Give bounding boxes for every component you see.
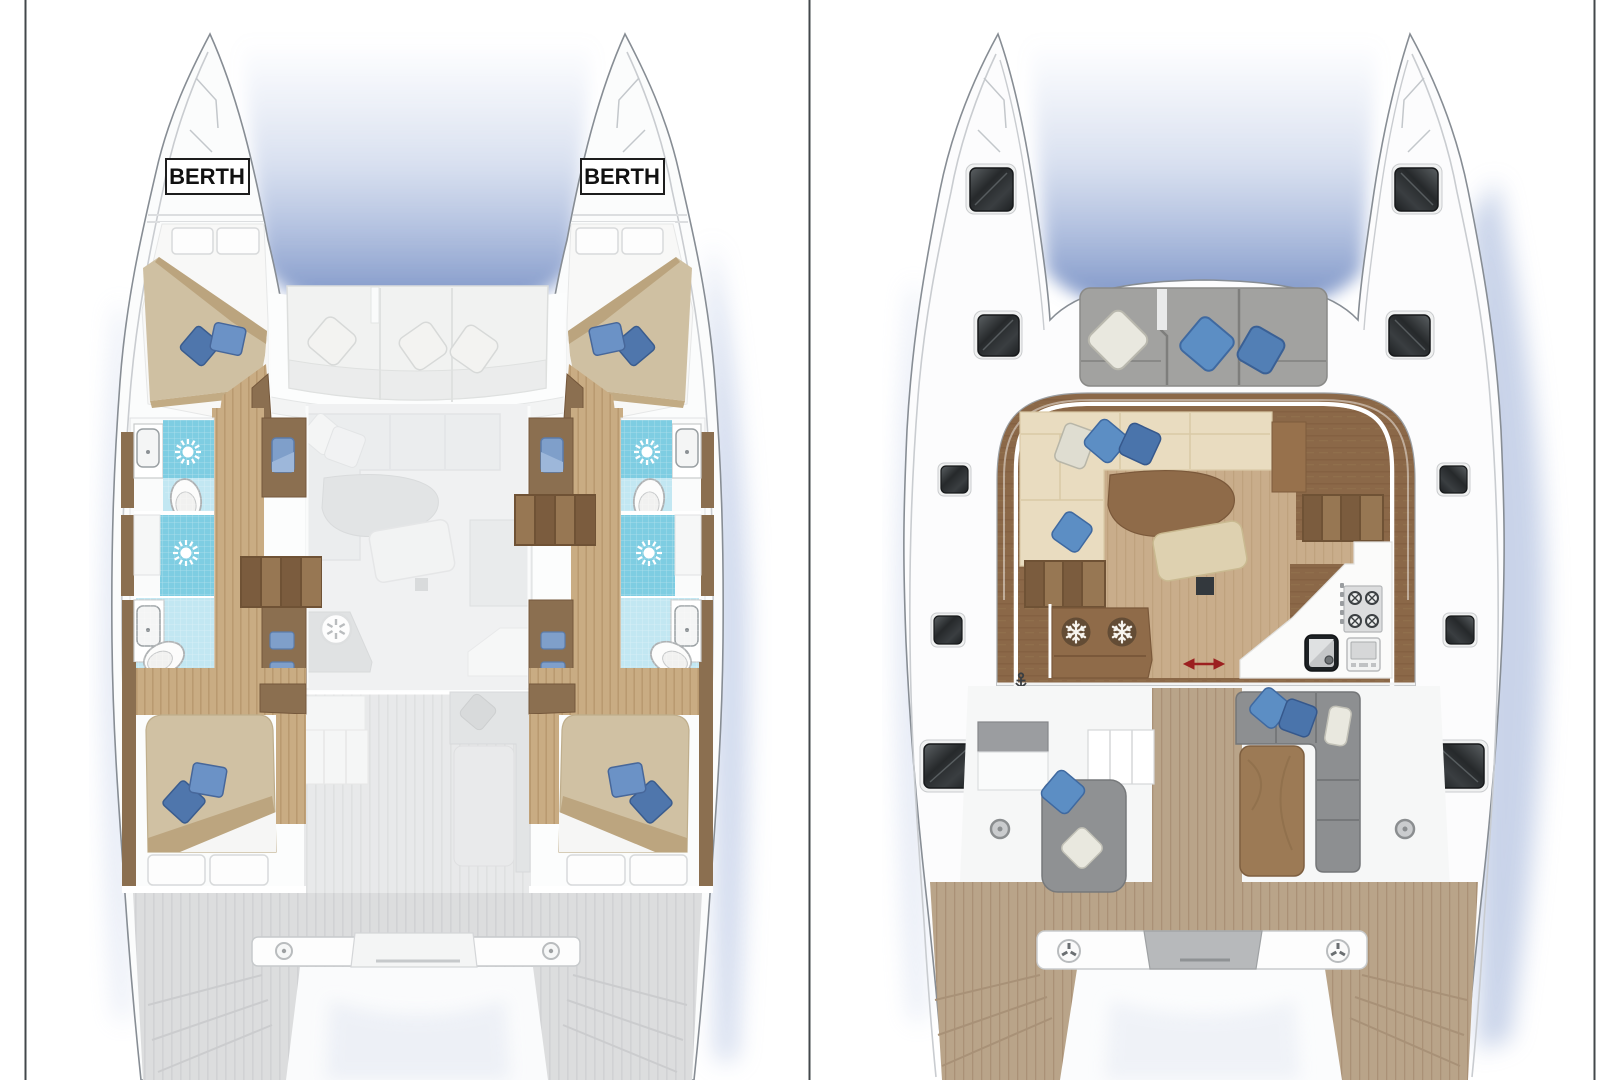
svg-text:BERTH: BERTH (169, 164, 245, 189)
svg-text:BERTH: BERTH (584, 164, 660, 189)
